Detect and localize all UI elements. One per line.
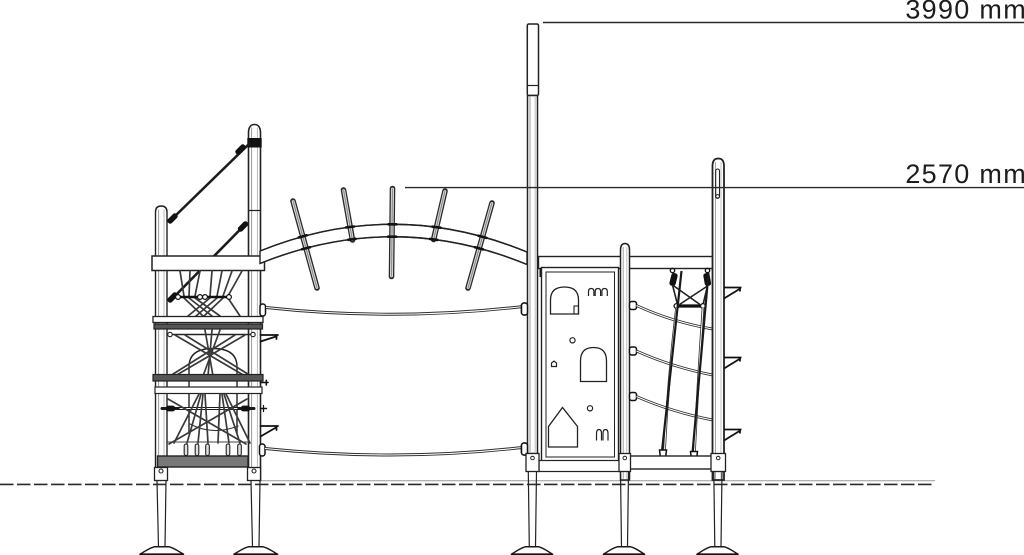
svg-text:2570 mm: 2570 mm [905, 159, 1024, 189]
svg-text:3990 mm: 3990 mm [905, 0, 1024, 25]
